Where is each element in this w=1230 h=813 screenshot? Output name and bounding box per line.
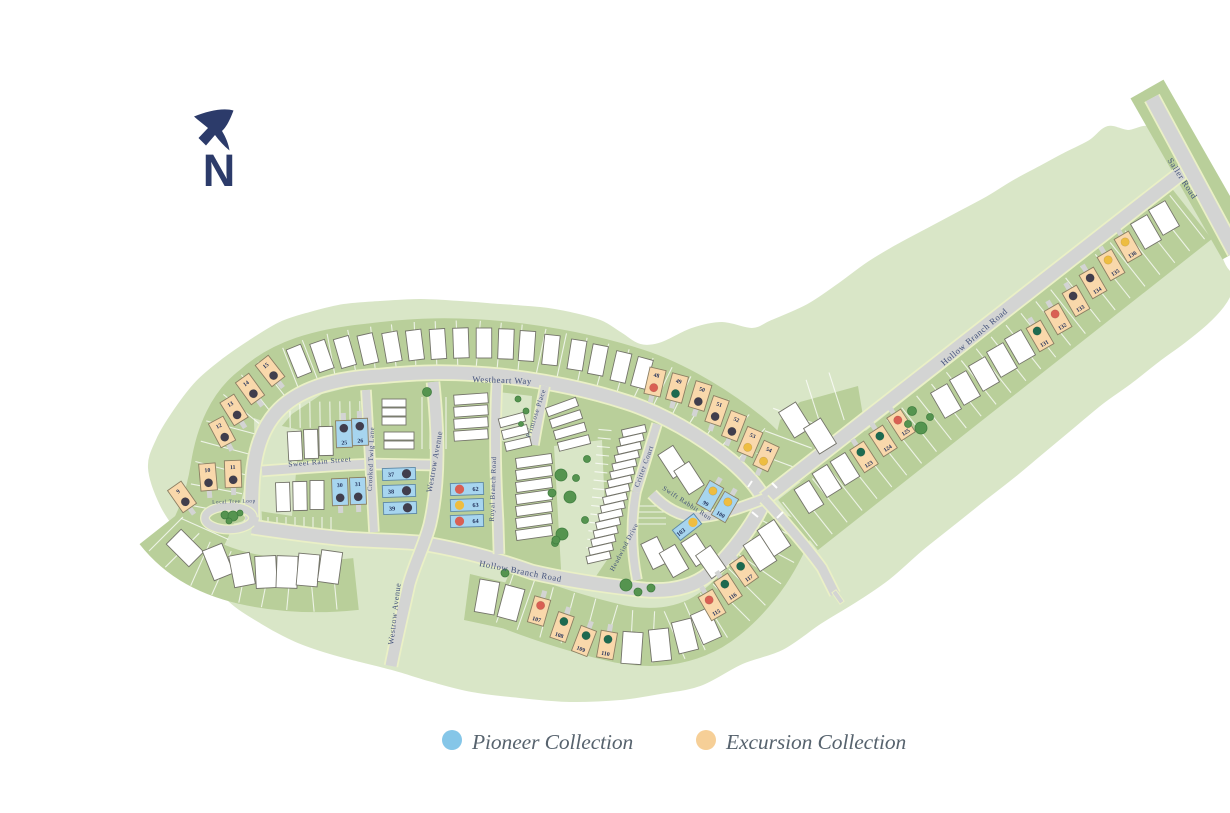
svg-text:Pioneer Collection: Pioneer Collection bbox=[471, 730, 633, 754]
svg-text:25: 25 bbox=[341, 440, 347, 446]
svg-text:30: 30 bbox=[337, 483, 343, 489]
svg-text:N: N bbox=[203, 145, 236, 196]
svg-text:10: 10 bbox=[204, 468, 210, 474]
svg-text:31: 31 bbox=[355, 482, 361, 488]
svg-text:64: 64 bbox=[472, 518, 478, 525]
svg-text:11: 11 bbox=[230, 465, 236, 471]
svg-text:37: 37 bbox=[388, 471, 394, 478]
svg-text:Excursion Collection: Excursion Collection bbox=[725, 730, 906, 754]
svg-text:39: 39 bbox=[389, 505, 395, 512]
svg-text:62: 62 bbox=[472, 486, 478, 493]
svg-text:38: 38 bbox=[388, 488, 394, 495]
svg-text:63: 63 bbox=[472, 502, 478, 509]
svg-text:26: 26 bbox=[357, 438, 363, 444]
svg-text:Westheart Way: Westheart Way bbox=[472, 374, 532, 386]
